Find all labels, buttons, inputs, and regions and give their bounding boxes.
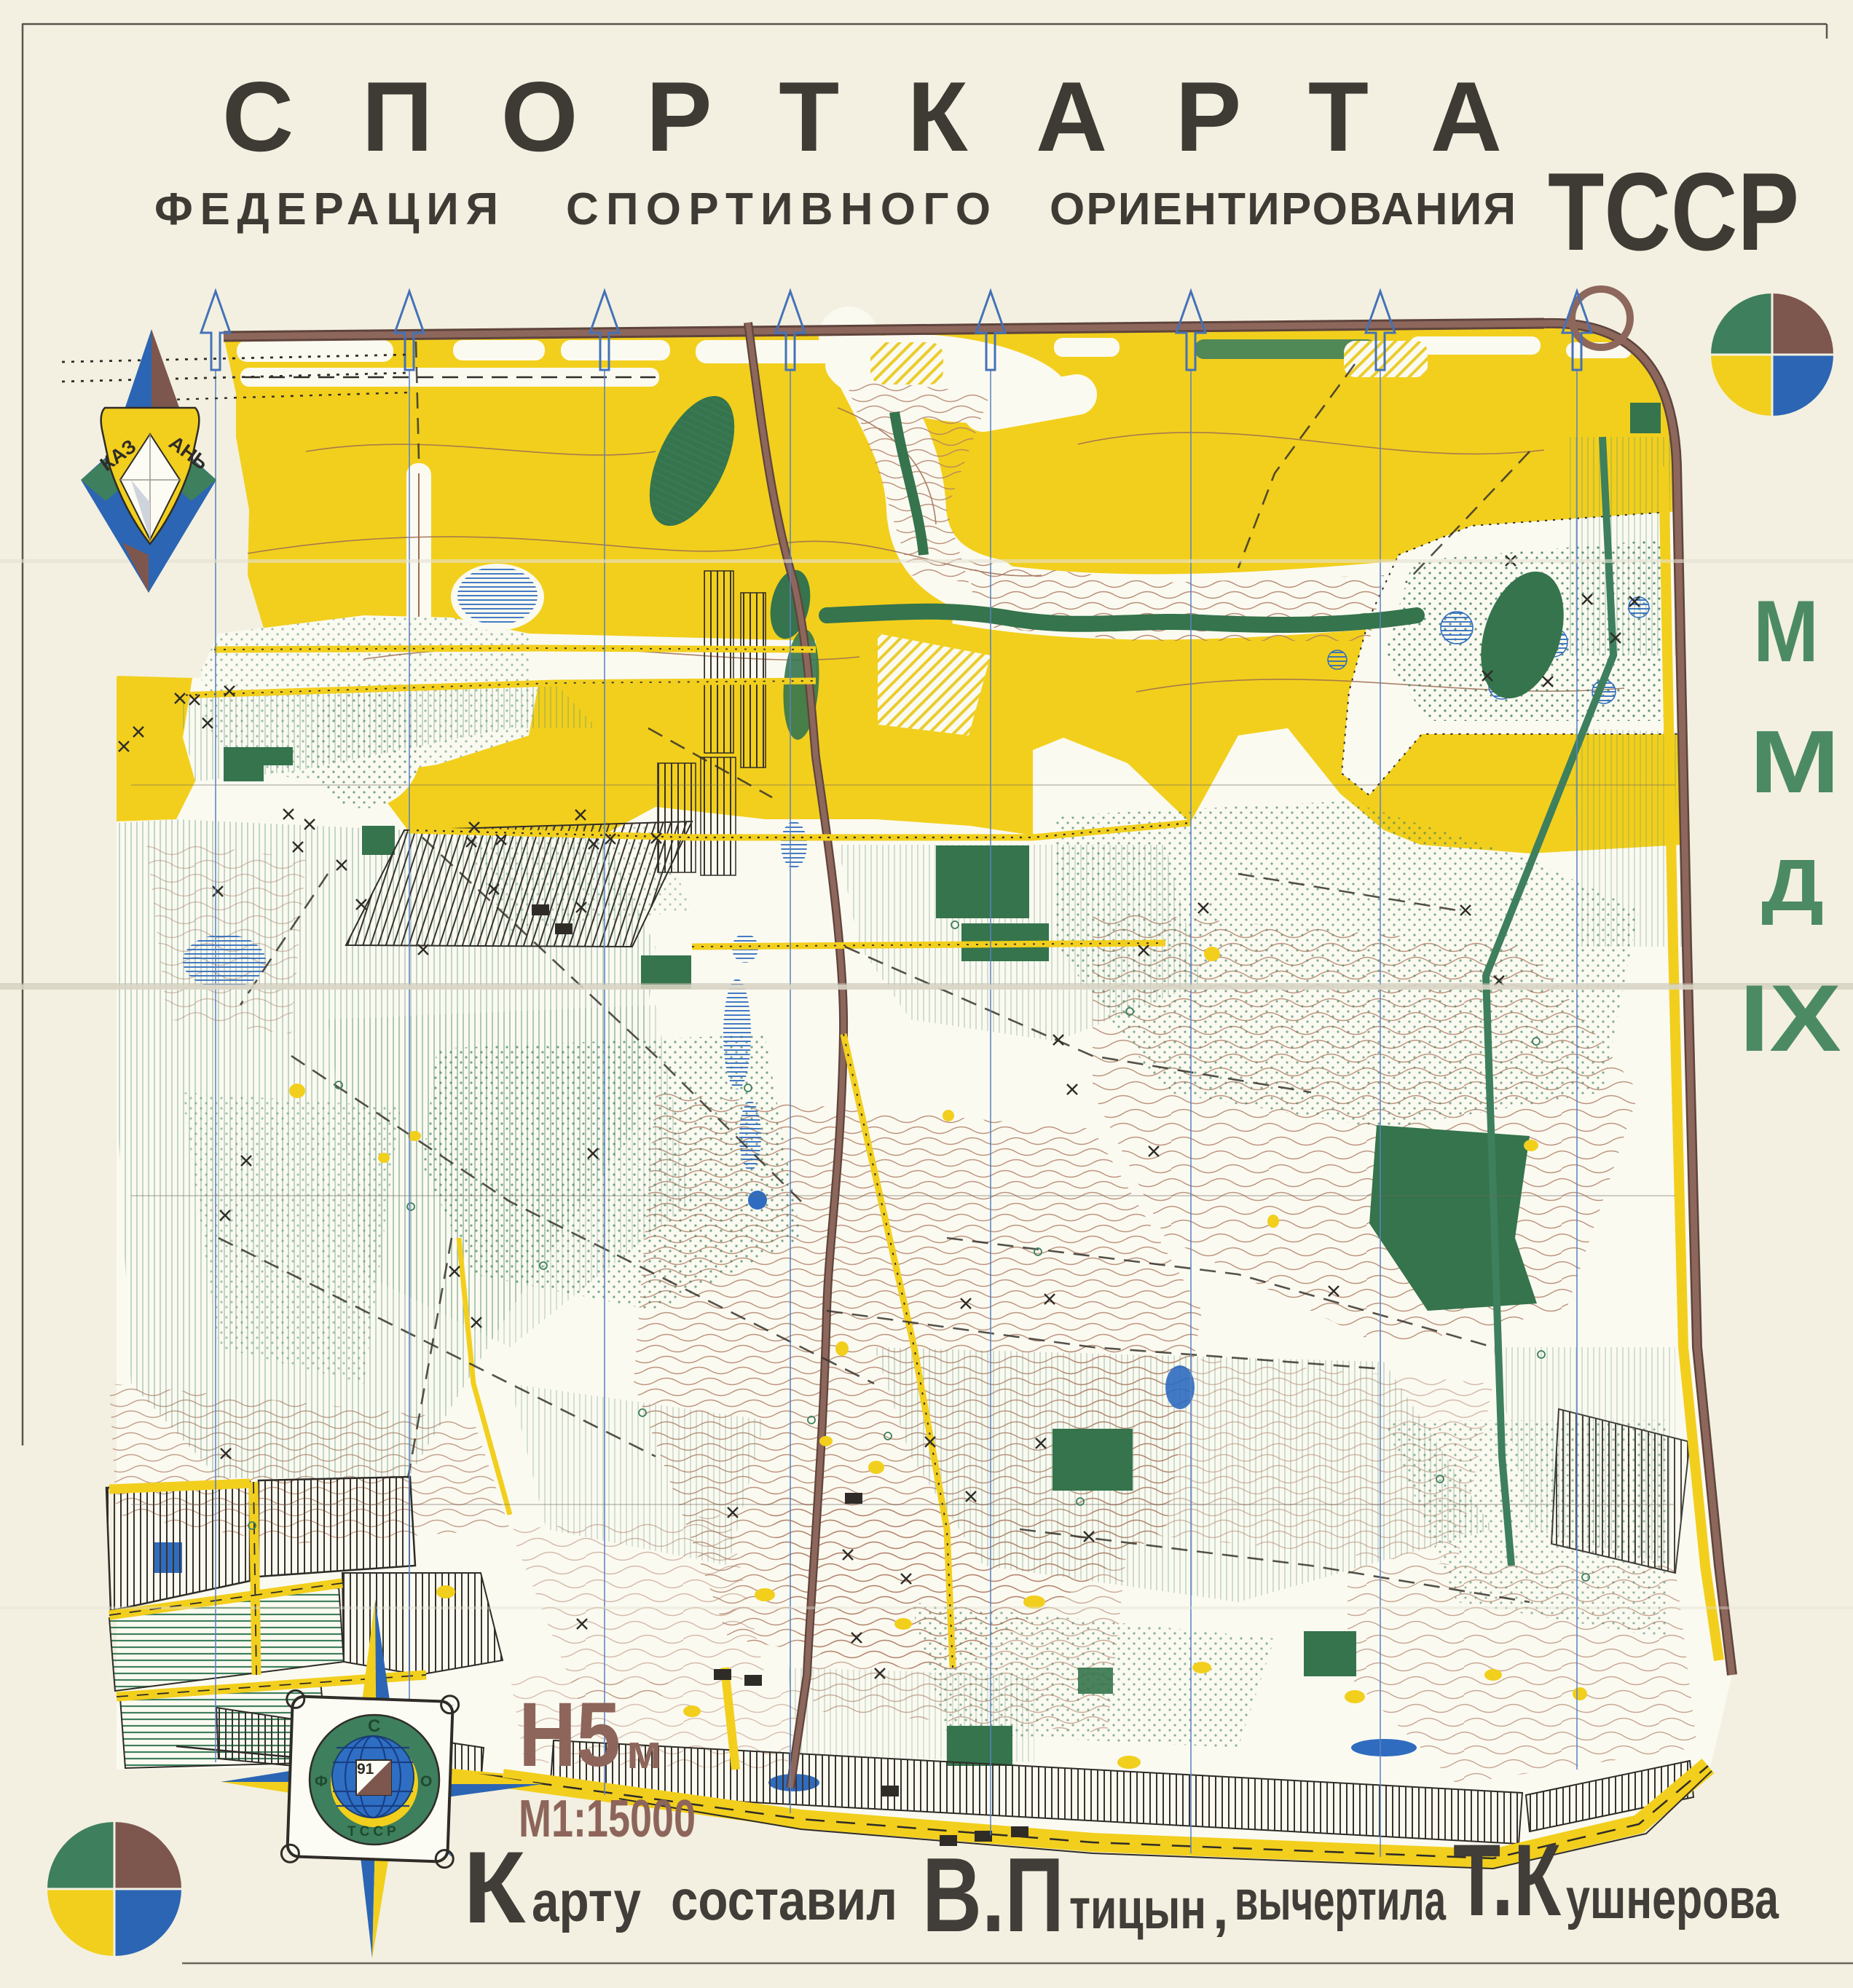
svg-text:тицын: тицын (1069, 1877, 1206, 1941)
svg-text:арту: арту (532, 1869, 641, 1933)
svg-text:91: 91 (357, 1761, 374, 1778)
svg-text:ТССР: ТССР (1548, 150, 1799, 274)
svg-text:IX: IX (1739, 965, 1841, 1071)
svg-text:К: К (463, 1830, 526, 1944)
svg-text:ФЕДЕРАЦИЯ: ФЕДЕРАЦИЯ (154, 184, 498, 234)
svg-text:Д: Д (1761, 845, 1824, 926)
svg-text:СПОРТИВНОГО: СПОРТИВНОГО (566, 184, 991, 234)
svg-text:Ф: Ф (315, 1773, 328, 1790)
svg-text:Т.К: Т.К (1453, 1823, 1561, 1937)
svg-text:М: М (1753, 583, 1819, 680)
svg-text:Н5: Н5 (519, 1684, 621, 1786)
svg-text:М: М (1750, 712, 1840, 811)
svg-text:ушнерова: ушнерова (1566, 1866, 1779, 1930)
svg-text:м: м (626, 1724, 662, 1778)
svg-text:составил: составил (671, 1868, 897, 1932)
svg-text:вычертила: вычертила (1235, 1868, 1446, 1932)
svg-text:О: О (420, 1773, 432, 1790)
svg-text:В.П: В.П (922, 1836, 1064, 1954)
svg-text:ТССР: ТССР (347, 1824, 400, 1839)
svg-text:С: С (368, 1716, 380, 1736)
svg-text:ОРИЕНТИРОВАНИЯ: ОРИЕНТИРОВАНИЯ (1050, 184, 1516, 234)
svg-text:М1:15000: М1:15000 (519, 1790, 696, 1848)
svg-text:,: , (1213, 1877, 1229, 1941)
